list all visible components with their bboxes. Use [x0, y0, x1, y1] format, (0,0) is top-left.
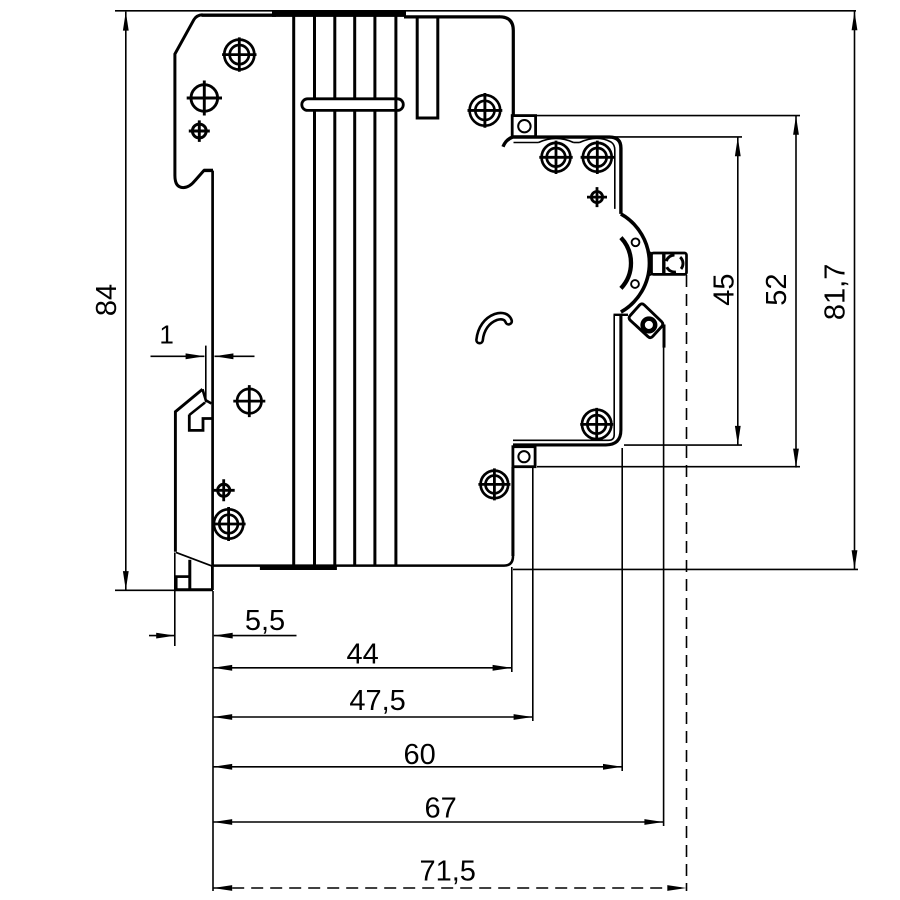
svg-text:60: 60 — [403, 739, 435, 771]
svg-text:52: 52 — [761, 273, 793, 305]
svg-text:44: 44 — [346, 638, 378, 670]
svg-text:5,5: 5,5 — [245, 605, 285, 637]
svg-text:71,5: 71,5 — [419, 856, 475, 888]
svg-text:47,5: 47,5 — [349, 685, 405, 717]
svg-text:45: 45 — [709, 273, 741, 305]
svg-text:81,7: 81,7 — [819, 264, 851, 320]
svg-text:84: 84 — [91, 284, 123, 316]
svg-text:67: 67 — [424, 793, 456, 825]
svg-text:1: 1 — [159, 320, 173, 350]
